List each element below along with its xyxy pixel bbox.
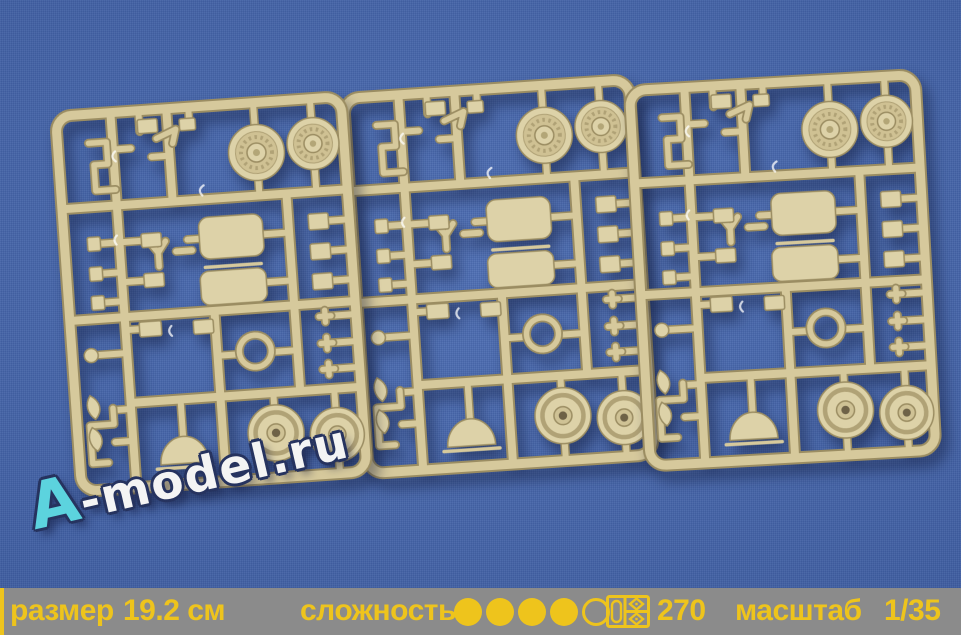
bar-left-stripe: [0, 588, 4, 635]
info-bar: размер 19.2 см сложность 270 масштаб 1/3…: [0, 588, 961, 635]
scale-value: 1/35: [884, 588, 940, 634]
complexity-dot: [518, 598, 546, 626]
scale-label: масштаб: [735, 588, 862, 634]
parts-count: 270: [657, 588, 706, 634]
complexity-dot: [550, 598, 578, 626]
complexity-label: сложность: [300, 588, 456, 634]
product-photo: A-model.ru размер 19.2 см сложность 270 …: [0, 0, 961, 635]
complexity-dots: [454, 588, 610, 635]
sprue-panel-right: [622, 67, 943, 473]
complexity-dot: [486, 598, 514, 626]
size-value: 19.2 см: [123, 588, 225, 634]
complexity-dot: [454, 598, 482, 626]
sprue-panel-middle: [336, 72, 661, 481]
size-label: размер: [10, 588, 114, 634]
sprue-icon: [606, 595, 650, 628]
watermark-letter-a: A: [22, 462, 88, 545]
